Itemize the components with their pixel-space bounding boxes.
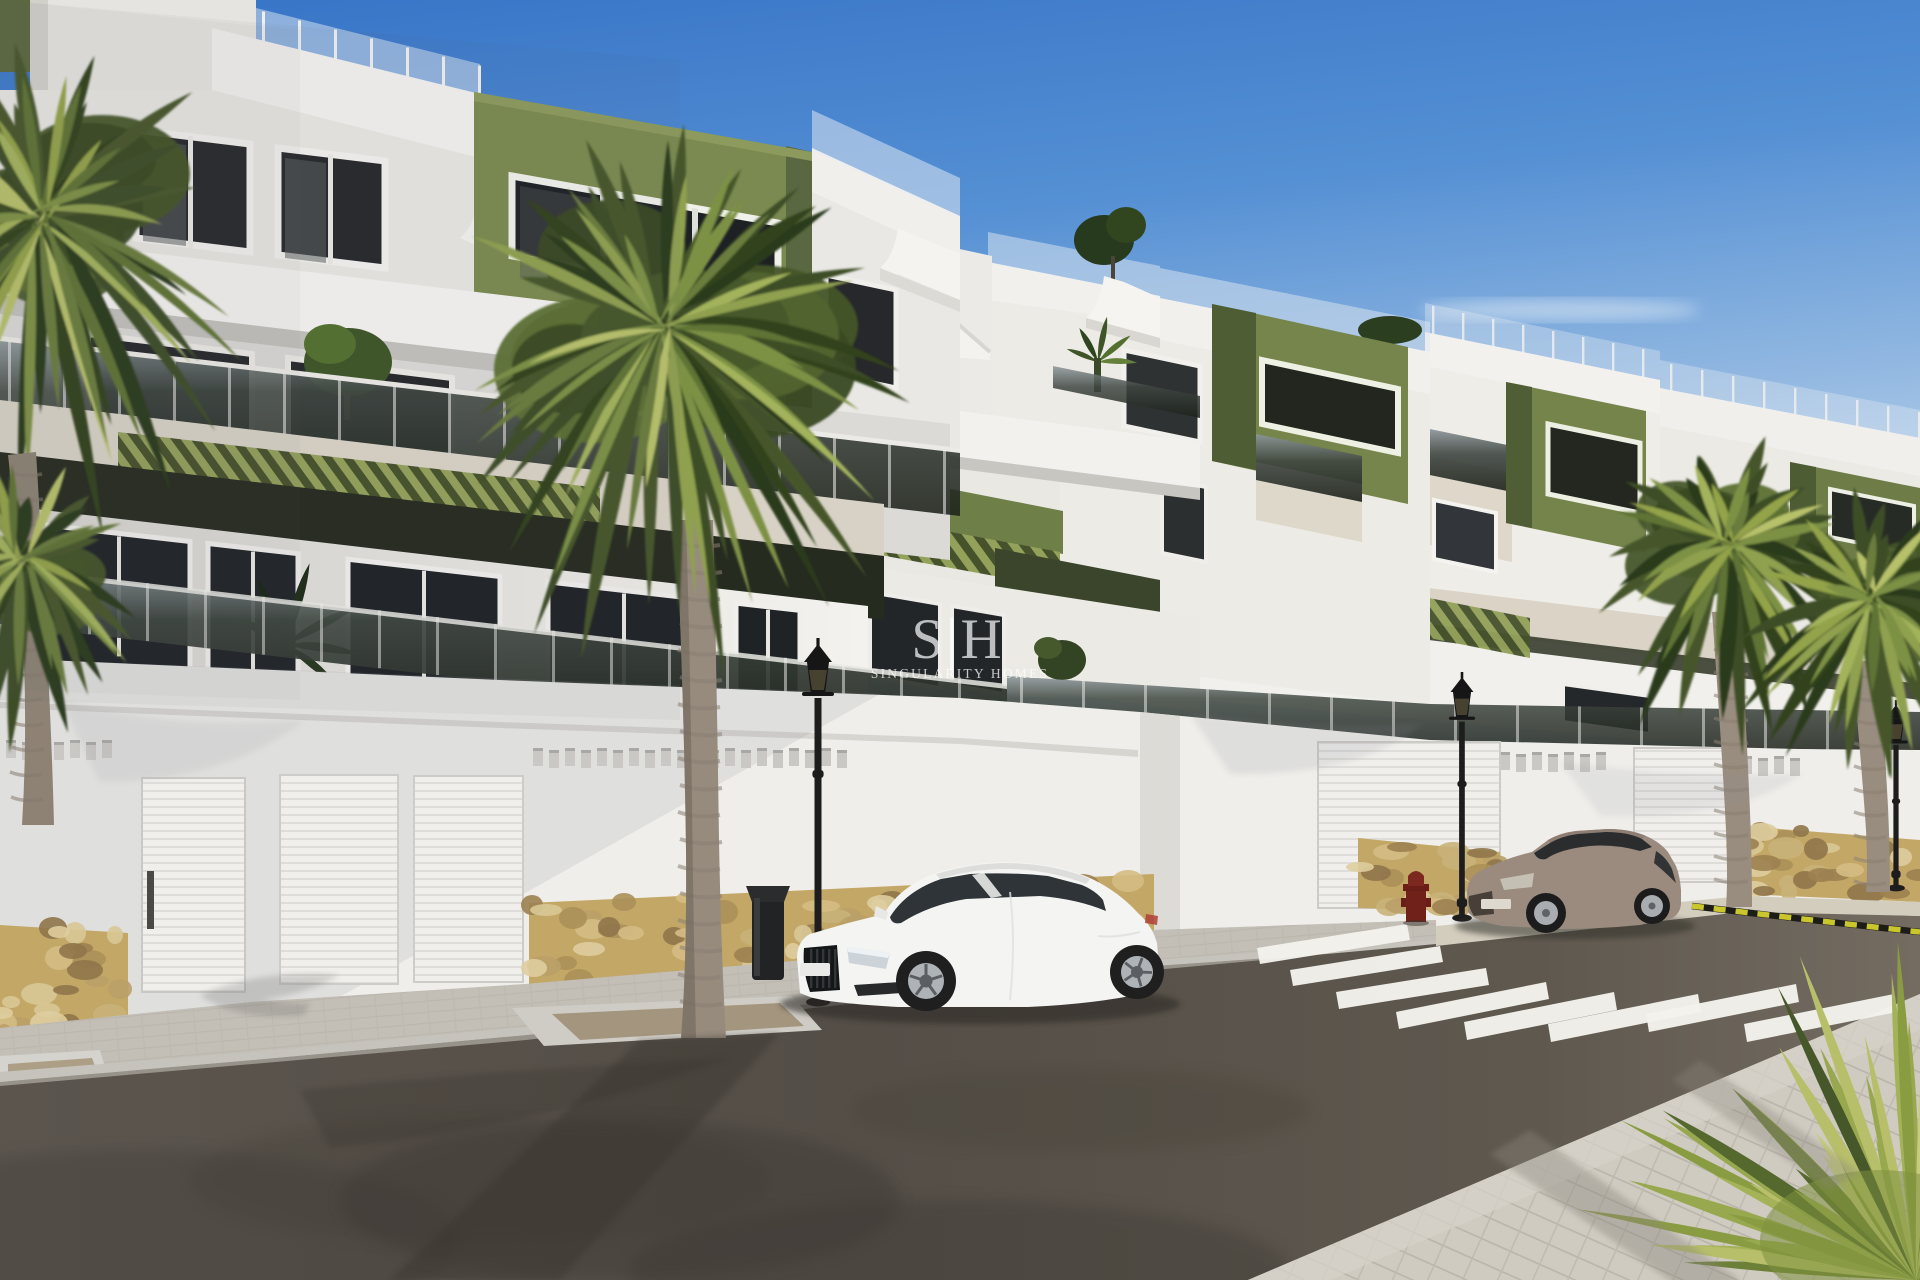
- svg-text:S|H: S|H: [911, 608, 1004, 671]
- svg-text:SINGULARITY HOMES: SINGULARITY HOMES: [871, 666, 1049, 681]
